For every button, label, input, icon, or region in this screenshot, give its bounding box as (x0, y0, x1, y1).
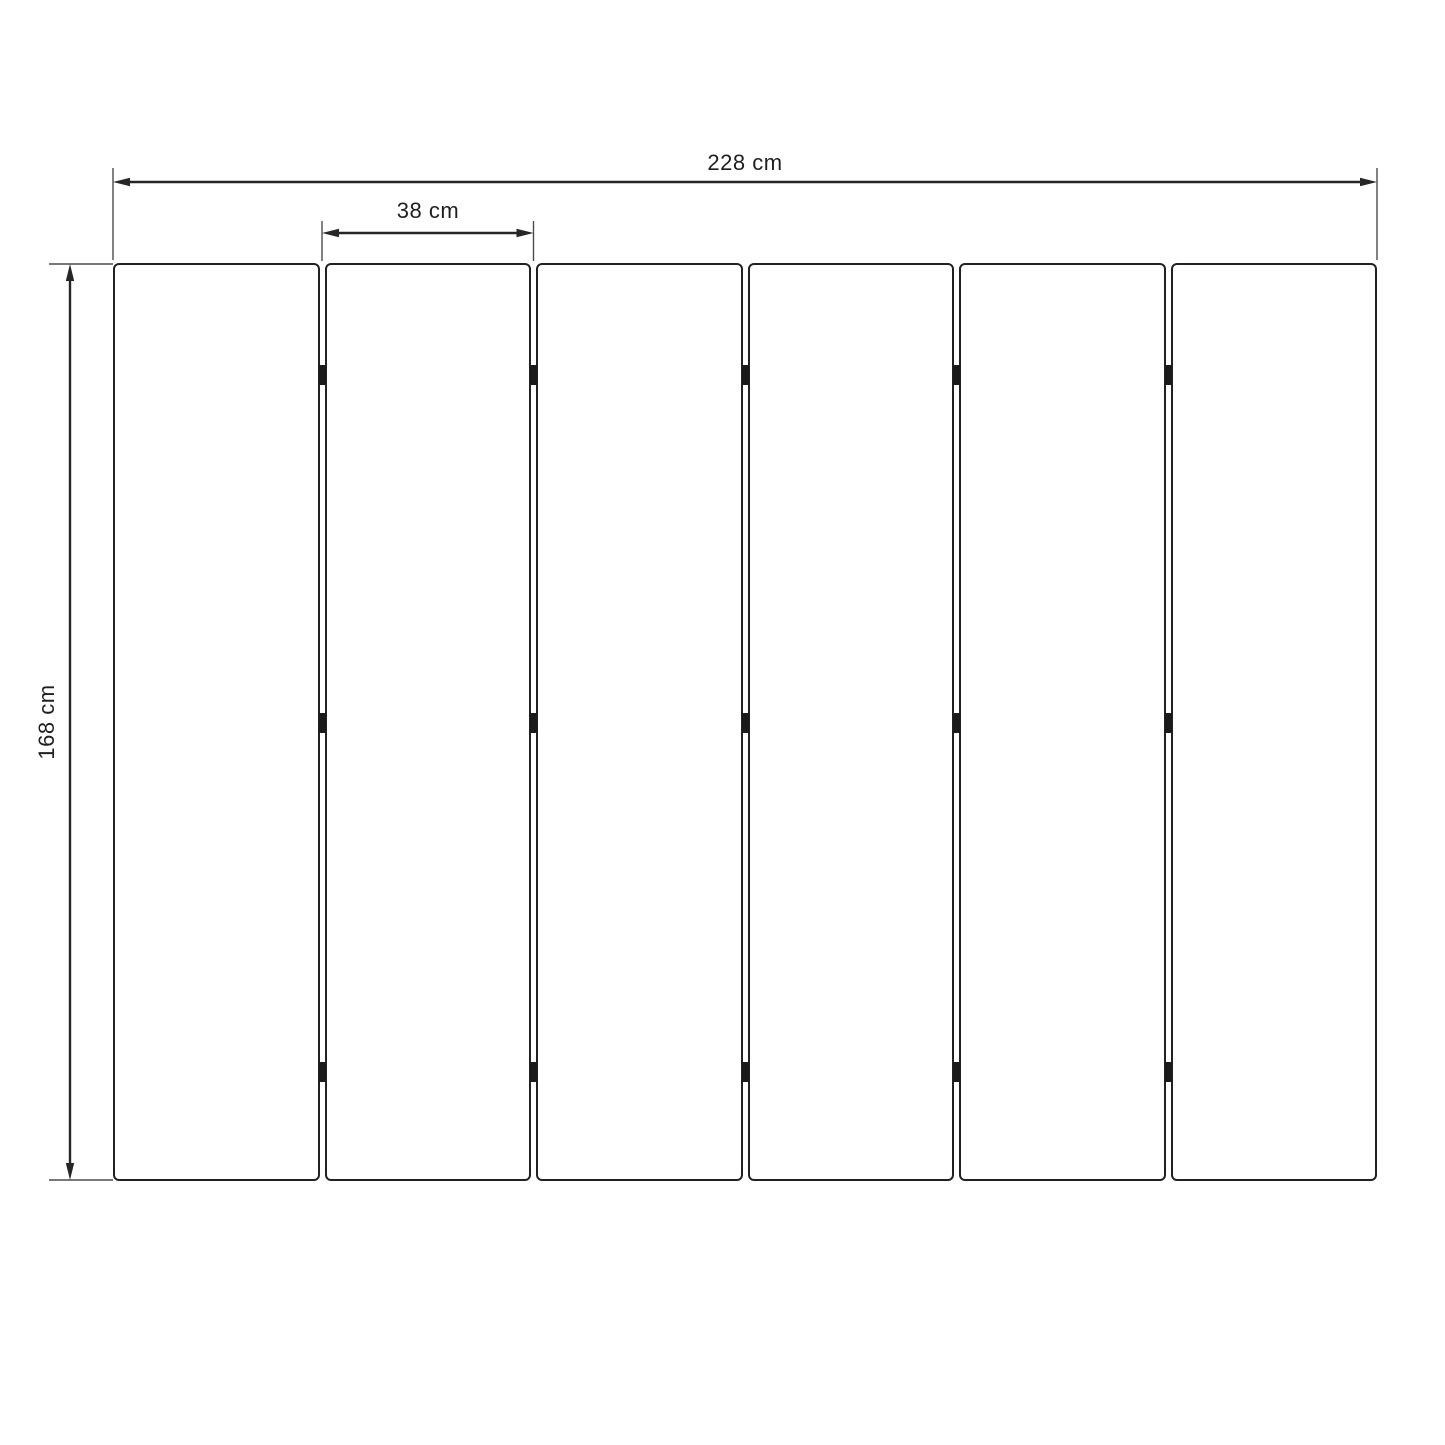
hinge-gap3-row3 (742, 1062, 749, 1082)
hinge-gap4-row3 (953, 1062, 960, 1082)
hinge-gap4-row1 (953, 365, 960, 385)
hinge-gap1-row3 (319, 1062, 326, 1082)
panel-6 (1171, 263, 1378, 1181)
panel-5 (959, 263, 1166, 1181)
panel-3 (536, 263, 743, 1181)
panel-1 (113, 263, 320, 1181)
hinge-gap5-row2 (1165, 713, 1172, 733)
panels-container (0, 0, 1445, 1445)
hinge-gap5-row3 (1165, 1062, 1172, 1082)
hinge-gap3-row2 (742, 713, 749, 733)
hinge-gap5-row1 (1165, 365, 1172, 385)
hinge-gap2-row3 (530, 1062, 537, 1082)
dimension-diagram: 228 cm 38 cm 168 cm (0, 0, 1445, 1445)
panel-2 (325, 263, 532, 1181)
panel-4 (748, 263, 955, 1181)
hinge-gap2-row2 (530, 713, 537, 733)
hinge-gap4-row2 (953, 713, 960, 733)
hinge-gap1-row1 (319, 365, 326, 385)
hinge-gap1-row2 (319, 713, 326, 733)
hinge-gap2-row1 (530, 365, 537, 385)
hinge-gap3-row1 (742, 365, 749, 385)
